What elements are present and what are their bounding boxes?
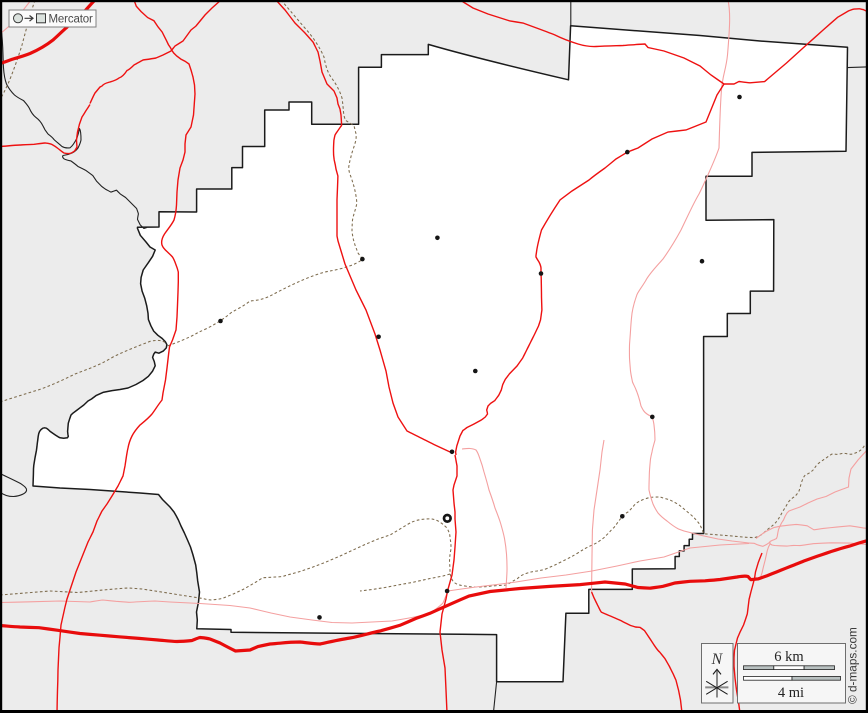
svg-text:4 mi: 4 mi xyxy=(778,685,804,701)
svg-text:Mercator: Mercator xyxy=(49,14,93,26)
svg-text:© d-maps.com: © d-maps.com xyxy=(846,627,860,704)
svg-text:N: N xyxy=(711,651,724,668)
svg-text:6 km: 6 km xyxy=(774,649,804,665)
